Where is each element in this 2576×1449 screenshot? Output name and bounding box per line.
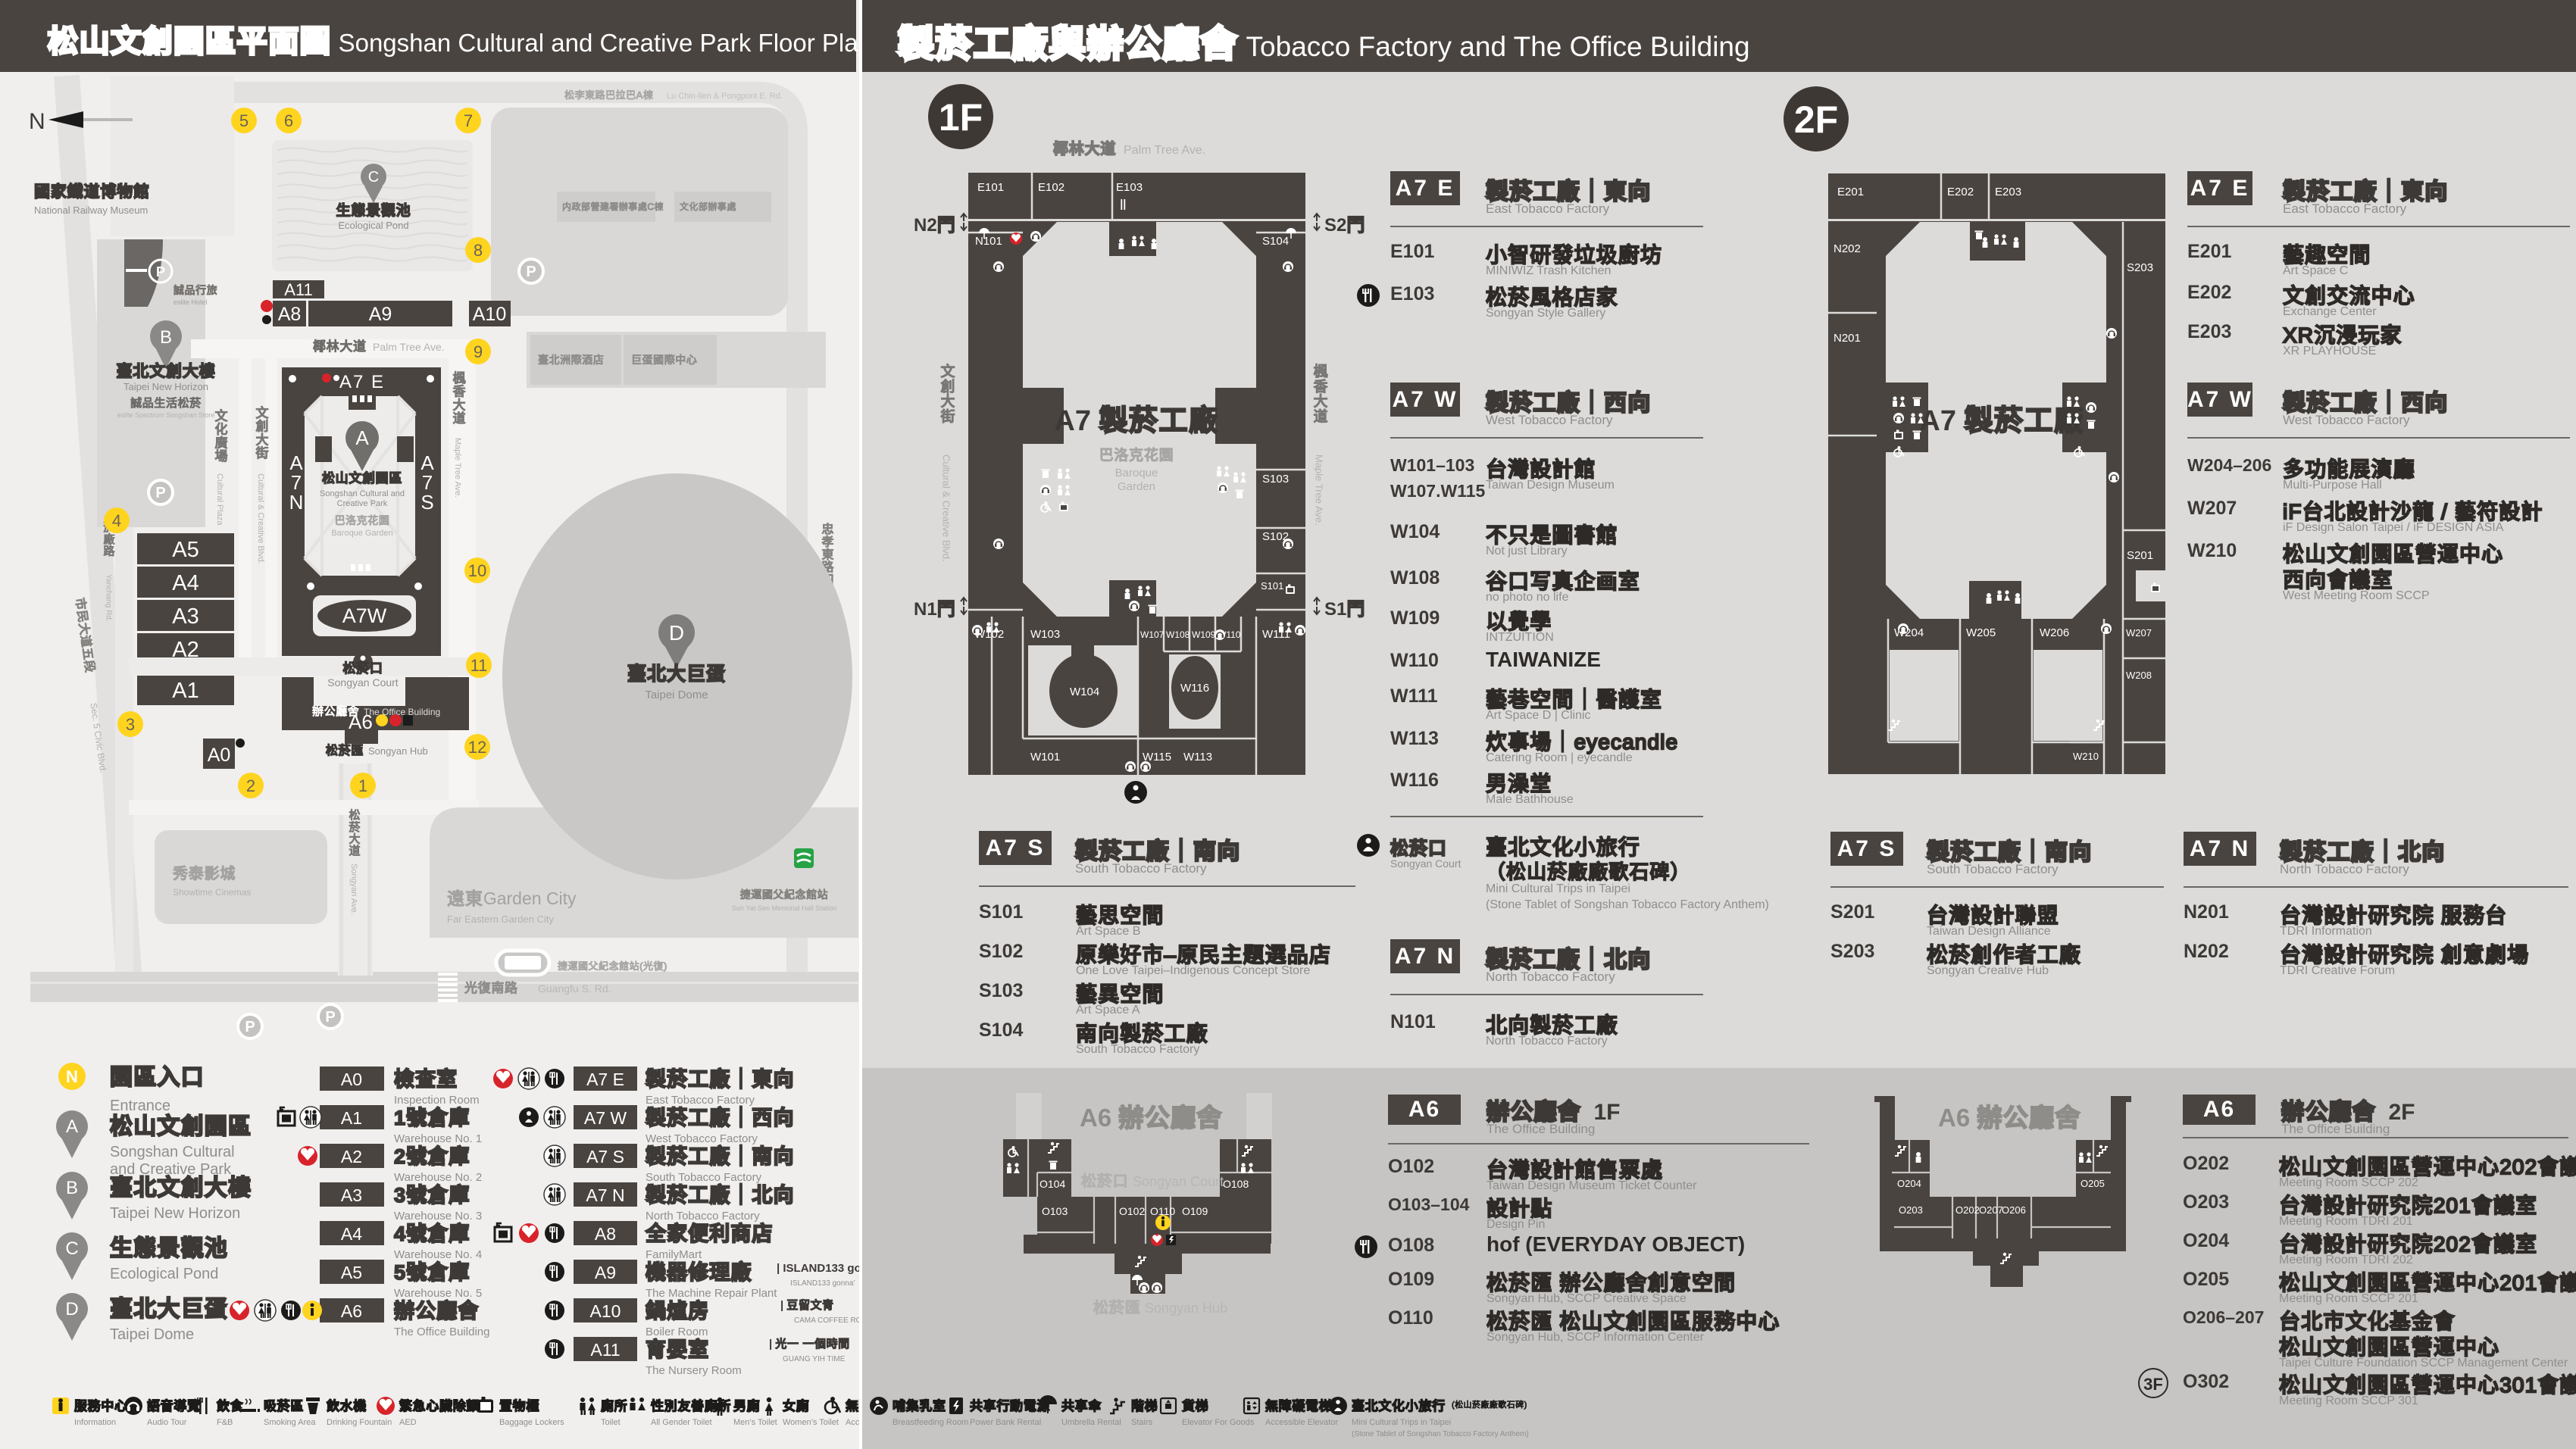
- svg-text:N: N: [29, 109, 45, 134]
- svg-text:男廁: 男廁: [733, 1398, 760, 1413]
- svg-text:5: 5: [239, 111, 249, 130]
- svg-text:Taipei New Horizon: Taipei New Horizon: [123, 381, 208, 392]
- svg-text:機器修理廠: 機器修理廠: [646, 1260, 752, 1284]
- svg-text:E101: E101: [977, 181, 1004, 194]
- svg-text:P: P: [156, 264, 165, 279]
- svg-text:A10: A10: [590, 1301, 621, 1321]
- svg-text:O103: O103: [1042, 1205, 1068, 1217]
- svg-text:W116: W116: [1180, 682, 1209, 695]
- svg-text:Boiler Room: Boiler Room: [646, 1326, 708, 1338]
- svg-text:誠品生活松菸: 誠品生活松菸: [130, 397, 202, 410]
- svg-text:E201: E201: [1837, 186, 1864, 198]
- svg-text:E203: E203: [1995, 186, 2021, 198]
- svg-text:Smoking Area: Smoking Area: [264, 1418, 316, 1427]
- svg-text:2號倉庫: 2號倉庫: [394, 1145, 470, 1168]
- svg-text:B: B: [160, 327, 172, 348]
- svg-text:文創大街: 文創大街: [254, 406, 269, 460]
- svg-text:W103: W103: [1030, 628, 1060, 641]
- svg-text:Accessible Elevator: Accessible Elevator: [1265, 1418, 1338, 1427]
- svg-text:吸菸區: 吸菸區: [264, 1399, 304, 1413]
- svg-text:N1門: N1門: [914, 599, 956, 620]
- svg-text:製菸工廠｜南向: 製菸工廠｜南向: [646, 1145, 795, 1168]
- svg-text:7: 7: [464, 111, 473, 130]
- svg-text:A7 N: A7 N: [586, 1185, 624, 1205]
- svg-text:Songshan Cultural and: Songshan Cultural and: [320, 489, 405, 498]
- svg-text:廁所: 廁所: [601, 1398, 627, 1413]
- svg-text:O203: O203: [1899, 1204, 1923, 1216]
- svg-text:W208: W208: [2126, 670, 2152, 681]
- svg-text:A0: A0: [208, 745, 231, 766]
- svg-text:Warehouse No. 3: Warehouse No. 3: [394, 1210, 482, 1223]
- svg-text:P: P: [155, 485, 165, 501]
- svg-text:A11: A11: [590, 1340, 620, 1360]
- svg-text:W205: W205: [1966, 626, 1996, 639]
- svg-text:巨蛋國際中心: 巨蛋國際中心: [631, 354, 697, 366]
- svg-text:A6: A6: [341, 1301, 362, 1321]
- svg-text:Warehouse No. 4: Warehouse No. 4: [394, 1248, 482, 1261]
- svg-text:Baroque Garden: Baroque Garden: [331, 529, 392, 538]
- svg-text:N: N: [289, 491, 304, 514]
- svg-text:The Nursery Room: The Nursery Room: [646, 1364, 742, 1377]
- svg-text:A8: A8: [278, 304, 302, 325]
- svg-text:11: 11: [470, 656, 488, 675]
- svg-text:捷運國父紀念館站: 捷運國父紀念館站: [740, 888, 828, 901]
- svg-text:D: D: [65, 1299, 78, 1319]
- svg-text:P: P: [325, 1009, 335, 1026]
- svg-text:Songyan Hub: Songyan Hub: [1145, 1301, 1227, 1316]
- svg-text:GUANG YIH TIME: GUANG YIH TIME: [783, 1355, 846, 1363]
- svg-text:Toilet: Toilet: [601, 1418, 621, 1427]
- svg-text:文化廣場: 文化廣場: [213, 409, 228, 463]
- svg-text:P: P: [526, 264, 536, 280]
- svg-text:Cultural & Creative Blvd.: Cultural & Creative Blvd.: [941, 454, 952, 562]
- svg-text:6: 6: [284, 111, 293, 130]
- svg-text:Warehouse No. 2: Warehouse No. 2: [394, 1171, 482, 1184]
- svg-text:置物櫃: 置物櫃: [499, 1398, 539, 1413]
- svg-text:Sun Yat-Sen Memorial Hall Stat: Sun Yat-Sen Memorial Hall Station: [732, 904, 836, 912]
- svg-text:A7 W: A7 W: [584, 1108, 627, 1128]
- svg-text:Drinking Fountain: Drinking Fountain: [327, 1418, 392, 1427]
- svg-text:O202: O202: [1955, 1204, 1980, 1216]
- svg-text:S103: S103: [1262, 473, 1289, 486]
- svg-text:松菸大道: 松菸大道: [348, 809, 361, 856]
- svg-text:O108: O108: [1223, 1178, 1249, 1190]
- svg-text:N101: N101: [975, 235, 1002, 248]
- svg-text:A5: A5: [341, 1263, 362, 1282]
- svg-text:Inspection Room: Inspection Room: [394, 1094, 480, 1107]
- svg-text:2F: 2F: [1794, 98, 1838, 141]
- svg-text:Power Bank Rental: Power Bank Rental: [970, 1418, 1041, 1427]
- svg-text:文創大街: 文創大街: [939, 364, 955, 423]
- svg-text:ISLAND133 gonna’: ISLAND133 gonna’: [790, 1279, 855, 1288]
- svg-text:S: S: [420, 491, 433, 514]
- svg-text:C: C: [65, 1238, 78, 1259]
- svg-text:共享行動電源: 共享行動電源: [970, 1398, 1050, 1413]
- svg-text:松山文創園區: 松山文創園區: [110, 1113, 252, 1139]
- svg-text:O206: O206: [2002, 1204, 2026, 1216]
- svg-text:製菸工廠｜東向: 製菸工廠｜東向: [646, 1067, 795, 1091]
- svg-text:Breastfeeding Room: Breastfeeding Room: [893, 1418, 968, 1427]
- svg-text:O102: O102: [1119, 1205, 1145, 1217]
- svg-text:A6 辦公廳舍: A6 辦公廳舍: [1080, 1104, 1223, 1132]
- svg-text:Elevator For Goods: Elevator For Goods: [1182, 1418, 1255, 1427]
- svg-text:臺北文創大樓: 臺北文創大樓: [110, 1175, 252, 1201]
- svg-text:O205: O205: [2080, 1178, 2105, 1189]
- svg-text:Maple Tree Ave.: Maple Tree Ave.: [1314, 454, 1325, 526]
- svg-text:S1門: S1門: [1324, 599, 1365, 620]
- svg-text:3號倉庫: 3號倉庫: [394, 1183, 470, 1207]
- svg-text:F&B: F&B: [217, 1418, 233, 1427]
- svg-text:(Stone Tablet of Songshan Toba: (Stone Tablet of Songshan Tobacco Factor…: [1352, 1430, 1529, 1438]
- svg-text:Audio Tour: Audio Tour: [147, 1418, 187, 1427]
- svg-text:| 光一 一個時間: | 光一 一個時間: [769, 1337, 850, 1351]
- svg-text:P: P: [245, 1019, 255, 1035]
- svg-text:Baggage Lockers: Baggage Lockers: [499, 1418, 564, 1427]
- svg-text:D: D: [669, 621, 684, 645]
- svg-text:A3: A3: [172, 604, 199, 629]
- svg-text:檢查室: 檢查室: [394, 1067, 458, 1091]
- svg-text:A7 E: A7 E: [586, 1070, 624, 1089]
- svg-text:A1: A1: [172, 679, 199, 703]
- svg-text:A8: A8: [595, 1224, 616, 1244]
- svg-text:全家便利商店: 全家便利商店: [645, 1222, 773, 1245]
- svg-text:W107: W107: [1140, 629, 1165, 640]
- svg-text:W101: W101: [1030, 751, 1060, 764]
- svg-text:West Tobacco Factory: West Tobacco Factory: [646, 1132, 758, 1145]
- svg-text:A5: A5: [172, 538, 199, 562]
- svg-text:E202: E202: [1947, 186, 1974, 198]
- svg-text:文化部辦事處: 文化部辦事處: [680, 201, 736, 212]
- svg-text:光復南路: 光復南路: [464, 981, 518, 995]
- svg-text:A: A: [355, 426, 369, 449]
- svg-text:AED: AED: [399, 1418, 417, 1427]
- svg-text:臺北大巨蛋: 臺北大巨蛋: [110, 1297, 228, 1322]
- svg-text:松山文創園區: 松山文創園區: [322, 470, 402, 486]
- svg-text:松菸匯: 松菸匯: [1093, 1299, 1140, 1316]
- svg-text:捷運國父紀念館站(光復): 捷運國父紀念館站(光復): [558, 960, 667, 972]
- svg-text:A1: A1: [341, 1108, 362, 1128]
- svg-text:階梯: 階梯: [1131, 1398, 1158, 1413]
- svg-text:FamilyMart: FamilyMart: [646, 1248, 702, 1261]
- svg-text:A6 辦公廳舍: A6 辦公廳舍: [1938, 1104, 2081, 1132]
- svg-text:Guangfu S. Rd.: Guangfu S. Rd.: [538, 982, 611, 995]
- svg-text:W207: W207: [2126, 627, 2152, 639]
- svg-text:1: 1: [358, 776, 367, 795]
- svg-text:South Tobacco Factory: South Tobacco Factory: [646, 1171, 762, 1184]
- svg-text:松李東路巴拉巴A棟: 松李東路巴拉巴A棟: [564, 89, 653, 101]
- svg-text:楓香大道: 楓香大道: [1311, 364, 1328, 423]
- svg-text:4: 4: [112, 511, 121, 530]
- svg-text:Taipei Dome: Taipei Dome: [110, 1326, 194, 1343]
- svg-text:W210: W210: [2073, 751, 2099, 762]
- svg-text:W206: W206: [2040, 626, 2069, 639]
- svg-text:E102: E102: [1038, 181, 1064, 194]
- svg-text:The Office Building: The Office Building: [364, 707, 440, 717]
- svg-text:North Tobacco Factory: North Tobacco Factory: [646, 1210, 760, 1223]
- svg-text:A9: A9: [369, 304, 392, 325]
- svg-text:Taipei New Horizon: Taipei New Horizon: [110, 1205, 240, 1222]
- svg-text:Men’s Toilet: Men’s Toilet: [733, 1418, 777, 1427]
- svg-text:A9: A9: [595, 1263, 616, 1282]
- svg-text:巴洛克花園: 巴洛克花園: [1099, 447, 1174, 464]
- svg-text:無障礙廁所: 無障礙廁所: [846, 1398, 859, 1413]
- svg-text:松菸口: 松菸口: [342, 660, 383, 676]
- svg-text:哺集乳室: 哺集乳室: [893, 1398, 946, 1413]
- svg-text:O109: O109: [1182, 1205, 1208, 1217]
- svg-text:Ecological Pond: Ecological Pond: [110, 1266, 218, 1282]
- svg-text:B: B: [66, 1178, 78, 1198]
- svg-text:A6: A6: [349, 710, 373, 733]
- svg-text:8: 8: [474, 241, 483, 260]
- svg-text:Songyan Ave.: Songyan Ave.: [349, 863, 358, 915]
- svg-text:W109: W109: [1192, 629, 1216, 640]
- svg-text:貨梯: 貨梯: [1182, 1398, 1208, 1413]
- svg-text:Baroque: Baroque: [1115, 467, 1158, 479]
- svg-text:| ISLAND133 gonna’: | ISLAND133 gonna’: [777, 1262, 859, 1275]
- svg-text:Entrance: Entrance: [110, 1098, 170, 1114]
- svg-text:共享傘: 共享傘: [1061, 1398, 1102, 1413]
- svg-text:秀泰影城: 秀泰影城: [173, 865, 236, 882]
- svg-text:A2: A2: [341, 1147, 362, 1166]
- svg-text:All Gender Toilet: All Gender Toilet: [651, 1418, 712, 1427]
- svg-text:5號倉庫: 5號倉庫: [394, 1260, 470, 1284]
- svg-text:E103: E103: [1116, 181, 1143, 194]
- svg-text:辦公廳舍: 辦公廳舍: [394, 1299, 479, 1323]
- svg-text:臺北文創大樓: 臺北文創大樓: [116, 362, 215, 380]
- svg-text:A7 S: A7 S: [586, 1147, 624, 1166]
- svg-text:Mini Cultural Trips in Taipei: Mini Cultural Trips in Taipei: [1352, 1418, 1451, 1427]
- svg-text:S101: S101: [1261, 580, 1283, 592]
- svg-text:Cultural Plaza: Cultural Plaza: [215, 473, 224, 526]
- svg-text:National Railway Museum: National Railway Museum: [34, 205, 148, 216]
- svg-text:Yanchang Rd.: Yanchang Rd.: [105, 574, 113, 622]
- svg-text:Warehouse No. 5: Warehouse No. 5: [394, 1287, 482, 1300]
- svg-text:12: 12: [468, 738, 486, 757]
- svg-text:10: 10: [468, 561, 486, 580]
- svg-text:A10: A10: [473, 304, 506, 325]
- svg-text:Taipei Dome: Taipei Dome: [645, 689, 708, 701]
- svg-text:S201: S201: [2127, 549, 2153, 562]
- svg-text:内政部營建署辦事處C棟: 内政部營建署辦事處C棟: [562, 201, 664, 212]
- svg-text:女廁: 女廁: [783, 1398, 809, 1413]
- svg-text:Songyan Court: Songyan Court: [327, 676, 399, 689]
- svg-text:(松山菸廠廠歌石碑): (松山菸廠廠歌石碑): [1452, 1399, 1527, 1410]
- svg-text:9: 9: [474, 342, 483, 361]
- svg-text:A7 製菸工廠: A7 製菸工廠: [1919, 404, 2084, 437]
- svg-text:Warehouse No. 1: Warehouse No. 1: [394, 1132, 482, 1145]
- svg-text:製菸工廠｜北向: 製菸工廠｜北向: [646, 1183, 795, 1207]
- svg-text:Far Eastern Garden City: Far Eastern Garden City: [447, 913, 554, 925]
- svg-text:O104: O104: [1039, 1178, 1065, 1190]
- svg-text:松菸口: 松菸口: [1081, 1173, 1128, 1190]
- svg-text:Garden: Garden: [1118, 480, 1155, 493]
- svg-text:4號倉庫: 4號倉庫: [394, 1222, 470, 1245]
- svg-text:Palm Tree Ave.: Palm Tree Ave.: [1124, 144, 1205, 157]
- svg-text:A7W: A7W: [342, 604, 387, 627]
- svg-text:A4: A4: [341, 1224, 362, 1244]
- svg-text:遠東Garden City: 遠東Garden City: [447, 888, 577, 908]
- svg-text:S203: S203: [2127, 261, 2153, 274]
- svg-text:臺北大巨蛋: 臺北大巨蛋: [627, 664, 726, 685]
- svg-text:Women’s Toilet: Women’s Toilet: [783, 1418, 839, 1427]
- svg-text:1號倉庫: 1號倉庫: [394, 1106, 470, 1129]
- svg-text:The Office Building: The Office Building: [394, 1326, 489, 1338]
- svg-text:Cultural & Creative Blvd.: Cultural & Creative Blvd.: [256, 473, 265, 564]
- svg-text:語音導覽: 語音導覽: [147, 1398, 201, 1413]
- svg-text:誠品行旅: 誠品行旅: [174, 284, 217, 296]
- svg-text:Lu Chin-lien & Pongpont E. Rd.: Lu Chin-lien & Pongpont E. Rd.: [667, 92, 783, 101]
- svg-text:國家鐵道博物館: 國家鐵道博物館: [34, 183, 150, 201]
- svg-text:W111: W111: [1262, 628, 1290, 641]
- svg-text:eslite Hotel: eslite Hotel: [174, 298, 208, 306]
- svg-text:臺北洲際酒店: 臺北洲際酒店: [538, 354, 604, 366]
- svg-text:Stairs: Stairs: [1131, 1418, 1153, 1427]
- svg-text:1F: 1F: [939, 96, 983, 139]
- svg-text:East Tobacco Factory: East Tobacco Factory: [646, 1094, 755, 1107]
- svg-text:Ecological Pond: Ecological Pond: [338, 220, 408, 231]
- svg-text:eslite Spectrum Songshan Store: eslite Spectrum Songshan Store: [117, 411, 214, 419]
- svg-text:A4: A4: [172, 571, 199, 595]
- svg-text:服務中心: 服務中心: [74, 1398, 128, 1413]
- svg-text:Creative Park: Creative Park: [337, 499, 388, 508]
- svg-text:N2門: N2門: [914, 215, 956, 236]
- svg-text:N201: N201: [1834, 332, 1861, 345]
- svg-text:N202: N202: [1834, 242, 1861, 255]
- svg-text:2: 2: [246, 776, 255, 795]
- svg-text:N: N: [66, 1067, 78, 1086]
- svg-text:3: 3: [126, 715, 135, 734]
- svg-text:飲水機: 飲水機: [326, 1398, 367, 1413]
- svg-text:Umbrella Rental: Umbrella Rental: [1061, 1418, 1121, 1427]
- svg-text:巴洛克花園: 巴洛克花園: [335, 514, 390, 526]
- svg-text:A3: A3: [341, 1185, 362, 1205]
- svg-text:A7 製菸工廠: A7 製菸工廠: [1054, 404, 1218, 437]
- svg-text:Palm Tree Ave.: Palm Tree Ave.: [373, 341, 445, 353]
- svg-text:CAMA COFFEE ROASTERS: CAMA COFFEE ROASTERS: [794, 1316, 859, 1325]
- svg-text:O204: O204: [1897, 1178, 1921, 1189]
- svg-text:生態景觀池: 生態景觀池: [336, 201, 411, 219]
- svg-text:無障礙電梯: 無障礙電梯: [1265, 1398, 1332, 1413]
- svg-text:育嬰室: 育嬰室: [646, 1338, 709, 1361]
- svg-text:松菸匯: 松菸匯: [326, 743, 364, 757]
- svg-text:W104: W104: [1070, 685, 1099, 698]
- svg-text:A: A: [66, 1116, 78, 1137]
- svg-text:The Machine Repair Plant: The Machine Repair Plant: [646, 1287, 777, 1300]
- svg-text:| 豆留文青: | 豆留文青: [780, 1298, 834, 1312]
- svg-text:O207: O207: [1979, 1204, 2003, 1216]
- svg-text:W108: W108: [1166, 629, 1190, 640]
- svg-text:Accessible Toilet: Accessible Toilet: [846, 1418, 859, 1427]
- svg-text:Songyan Court: Songyan Court: [1133, 1174, 1224, 1189]
- svg-text:椰林大道: 椰林大道: [313, 339, 367, 354]
- svg-text:Information: Information: [74, 1418, 116, 1427]
- svg-text:生態景觀池: 生態景觀池: [110, 1235, 228, 1261]
- svg-text:椰林大道: 椰林大道: [1053, 139, 1116, 158]
- svg-text:飲食: 飲食: [216, 1398, 244, 1413]
- svg-text:Songshan Cultural: Songshan Cultural: [110, 1144, 235, 1160]
- svg-text:Songyan Hub: Songyan Hub: [368, 745, 428, 757]
- svg-text:A11: A11: [284, 280, 313, 299]
- svg-text:C: C: [368, 169, 379, 186]
- svg-text:S2門: S2門: [1324, 215, 1365, 236]
- svg-text:園區入口: 園區入口: [110, 1065, 205, 1090]
- svg-text:A0: A0: [341, 1070, 362, 1089]
- svg-text:臺北文化小旅行: 臺北文化小旅行: [1352, 1398, 1446, 1413]
- svg-text:W113: W113: [1183, 751, 1212, 764]
- svg-text:A7 E: A7 E: [339, 372, 385, 392]
- svg-text:製菸工廠｜西向: 製菸工廠｜西向: [646, 1106, 795, 1129]
- svg-text:Maple Tree Ave.: Maple Tree Ave.: [453, 438, 462, 498]
- svg-text:Showtime Cinemas: Showtime Cinemas: [173, 887, 251, 898]
- svg-text:鍋爐房: 鍋爐房: [646, 1299, 709, 1323]
- svg-text:楓香大道: 楓香大道: [451, 371, 466, 425]
- svg-text:S104: S104: [1262, 235, 1289, 248]
